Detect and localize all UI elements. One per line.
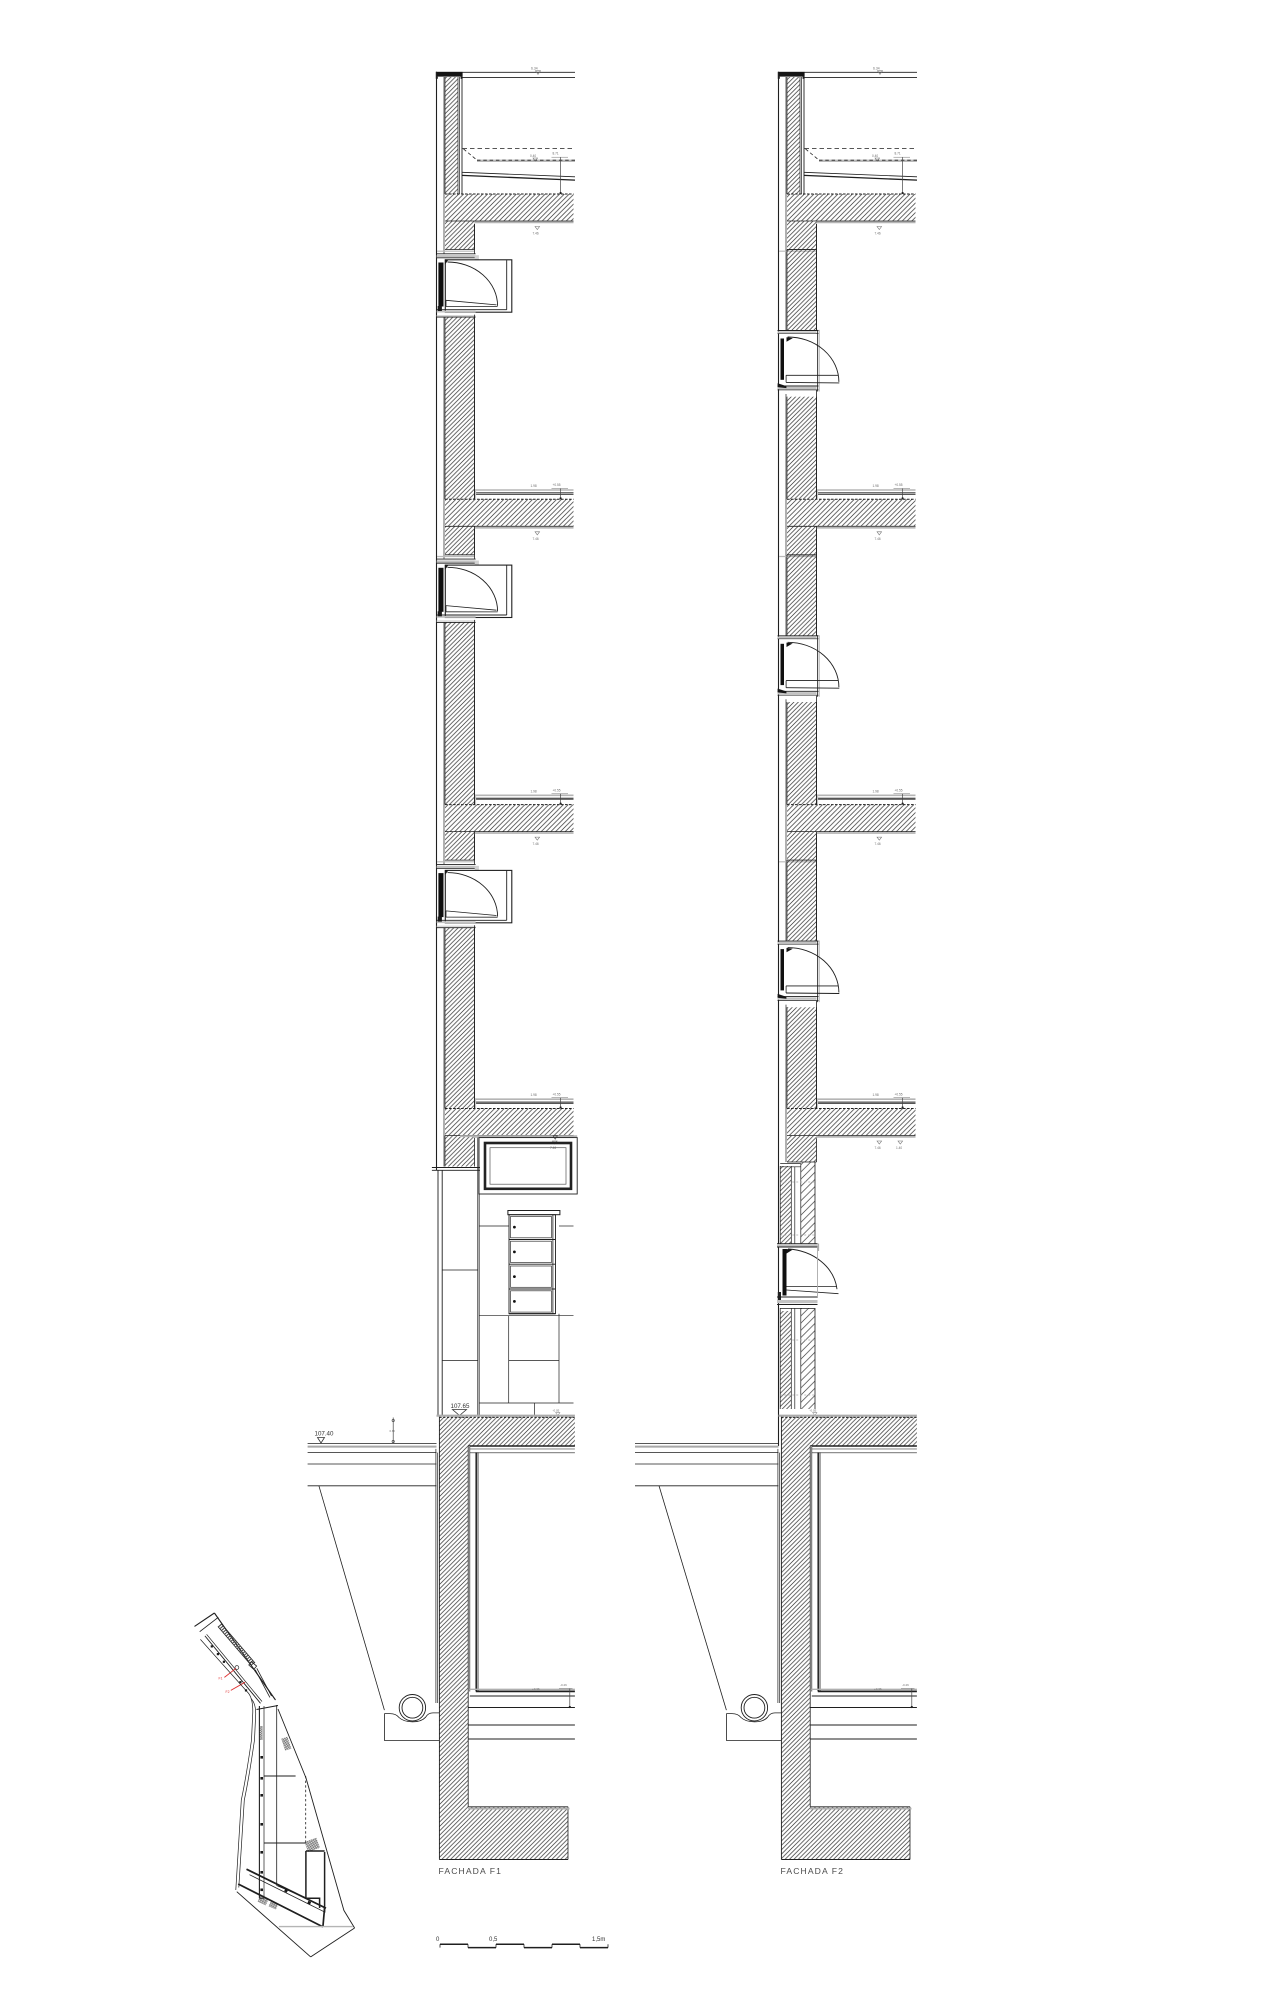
svg-text:1.40: 1.40 [896, 1146, 902, 1150]
svg-text:7.46: 7.46 [533, 537, 539, 541]
svg-text:FACHADA F2: FACHADA F2 [781, 1866, 845, 1876]
svg-text:F2: F2 [226, 1690, 230, 1694]
svg-text:7.46: 7.46 [875, 537, 881, 541]
svg-text:1,5m: 1,5m [592, 1937, 605, 1943]
svg-text:1.98: 1.98 [873, 789, 879, 793]
svg-text:FACHADA F1: FACHADA F1 [439, 1866, 503, 1876]
svg-text:1.98: 1.98 [873, 1093, 879, 1097]
svg-text:7.46: 7.46 [875, 842, 881, 846]
svg-text:0,5: 0,5 [489, 1937, 498, 1943]
svg-text:1.98: 1.98 [873, 484, 879, 488]
svg-text:107.40: 107.40 [315, 1431, 334, 1438]
svg-text:F1: F1 [219, 1677, 223, 1681]
svg-text:0.40: 0.40 [872, 154, 878, 158]
svg-text:-0.26: -0.26 [902, 1683, 909, 1687]
svg-text:+0.36: +0.36 [874, 1687, 882, 1691]
svg-text:0.80: 0.80 [390, 1429, 396, 1433]
svg-text:7.46: 7.46 [533, 232, 539, 236]
svg-text:+0.55: +0.55 [895, 788, 903, 792]
svg-text:0.40: 0.40 [530, 154, 536, 158]
svg-text:6.34: 6.34 [873, 67, 880, 71]
svg-text:-0.05: -0.05 [553, 1409, 560, 1413]
svg-text:107.65: 107.65 [451, 1403, 470, 1410]
svg-text:+0.55: +0.55 [895, 483, 903, 487]
svg-text:+0.55: +0.55 [553, 788, 561, 792]
svg-text:8.71: 8.71 [553, 152, 559, 156]
svg-text:+0.55: +0.55 [895, 1092, 903, 1096]
svg-text:+0.36: +0.36 [532, 1687, 540, 1691]
svg-text:6.34: 6.34 [531, 67, 538, 71]
svg-text:+0.55: +0.55 [553, 483, 561, 487]
svg-text:1.98: 1.98 [531, 1093, 537, 1097]
svg-text:-0.26: -0.26 [560, 1683, 567, 1687]
svg-text:8.71: 8.71 [895, 152, 901, 156]
svg-text:7.46: 7.46 [533, 842, 539, 846]
svg-text:7.46: 7.46 [875, 1146, 881, 1150]
svg-text:1.98: 1.98 [531, 789, 537, 793]
svg-text:-0.05: -0.05 [810, 1409, 817, 1413]
svg-text:7.46: 7.46 [875, 232, 881, 236]
svg-text:1.98: 1.98 [531, 484, 537, 488]
svg-text:+0.55: +0.55 [553, 1092, 561, 1096]
